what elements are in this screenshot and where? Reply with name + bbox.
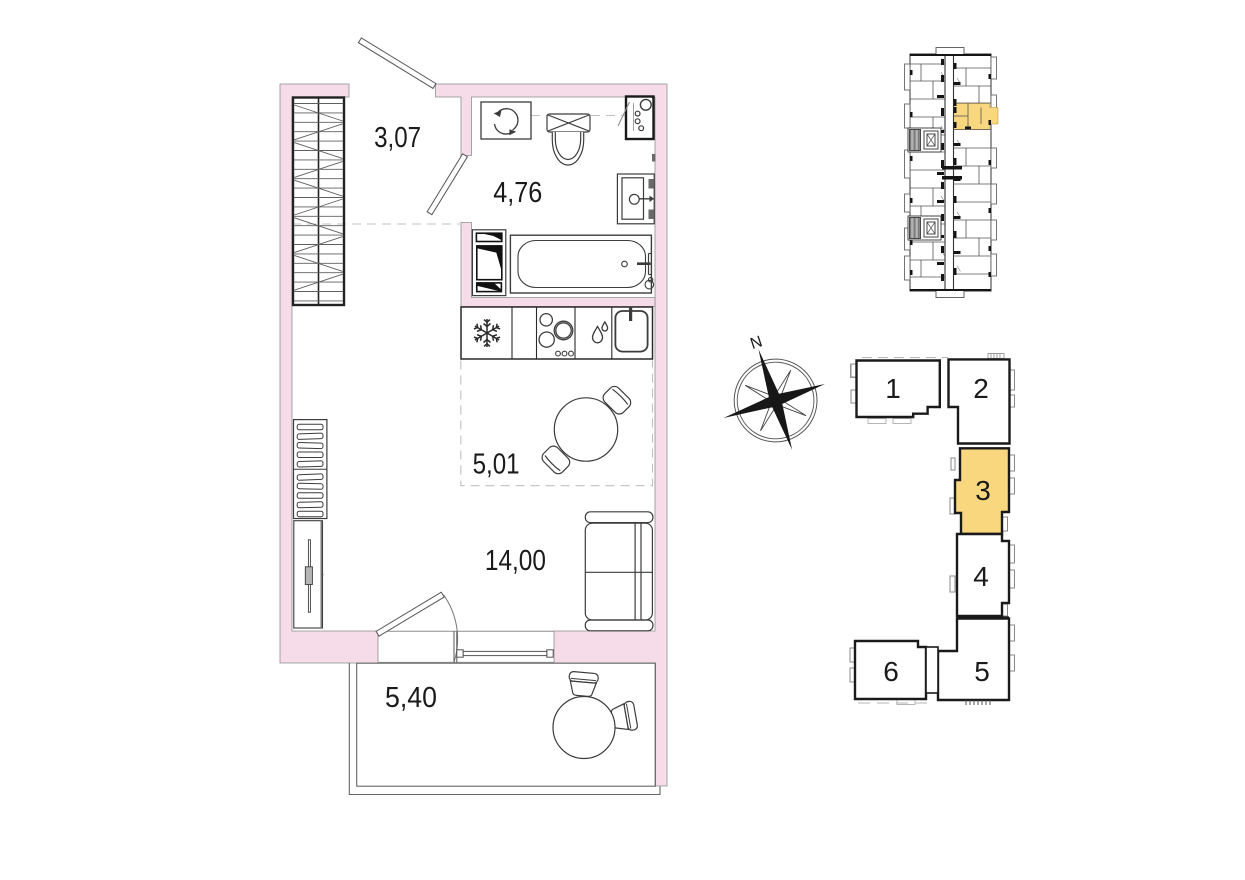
svg-text:5: 5 (974, 656, 990, 687)
svg-text:5,01: 5,01 (473, 448, 520, 480)
svg-text:4,76: 4,76 (493, 177, 542, 209)
svg-text:2: 2 (973, 373, 989, 404)
svg-text:N: N (748, 333, 764, 353)
svg-text:3,07: 3,07 (374, 122, 421, 154)
svg-text:3: 3 (975, 475, 991, 506)
svg-text:14,00: 14,00 (485, 545, 546, 577)
svg-text:4: 4 (973, 561, 989, 592)
svg-text:1: 1 (885, 373, 901, 404)
svg-text:5,40: 5,40 (385, 682, 437, 714)
svg-text:6: 6 (883, 656, 899, 687)
